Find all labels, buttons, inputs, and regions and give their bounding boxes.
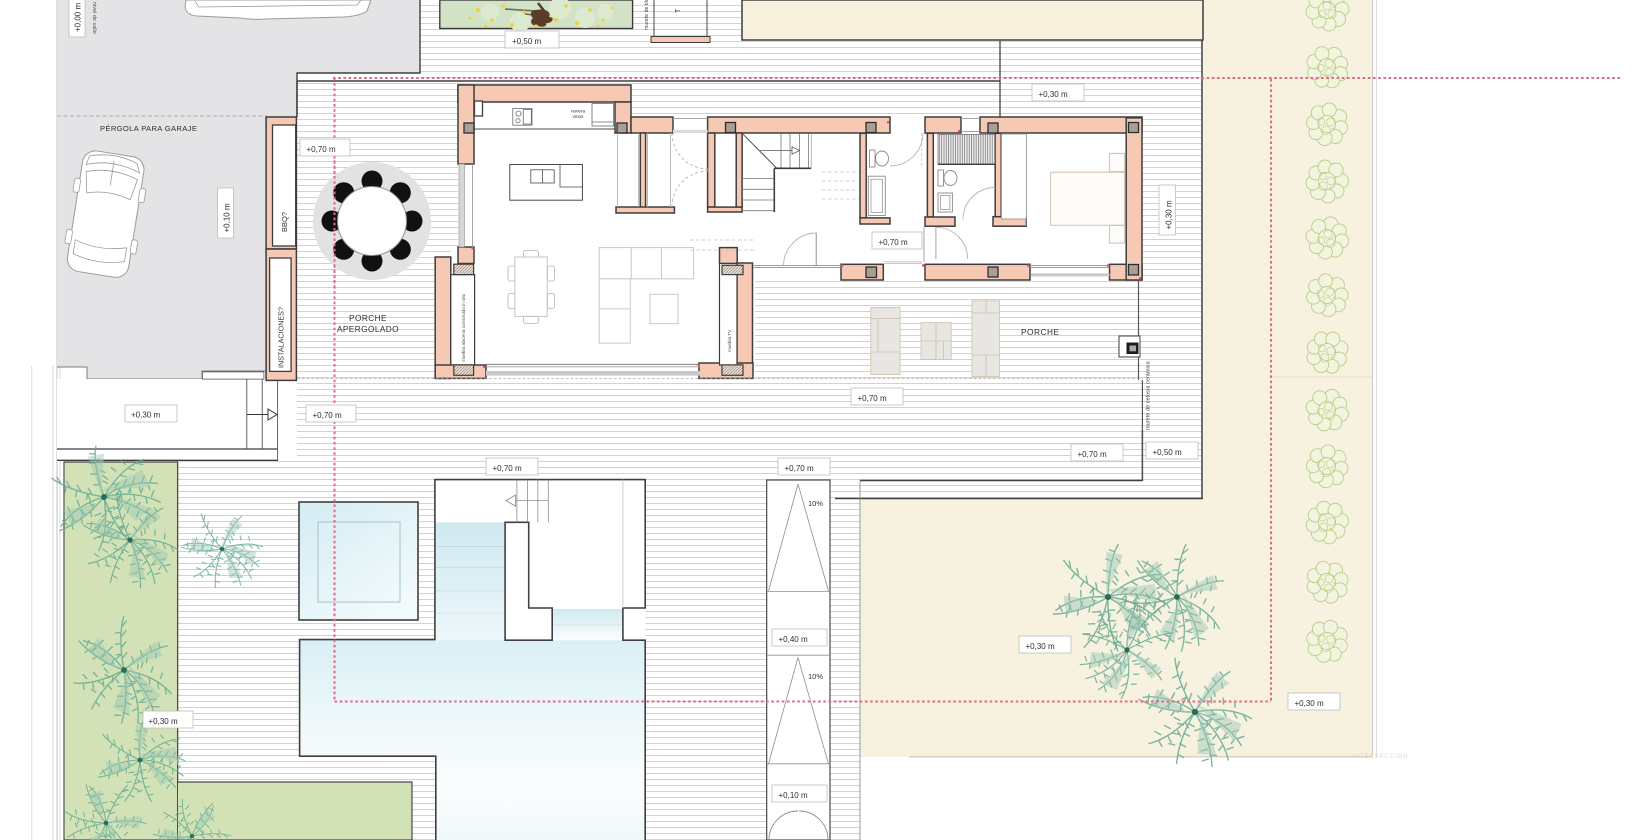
svg-text:+0,70 m: +0,70 m xyxy=(879,238,908,247)
svg-text:+0,70 m: +0,70 m xyxy=(858,394,887,403)
svg-text:+0,70 m: +0,70 m xyxy=(785,464,814,473)
svg-text:+0,30 m: +0,30 m xyxy=(149,717,178,726)
svg-text:+0,70 m: +0,70 m xyxy=(313,411,342,420)
svg-text:+0,50 m: +0,50 m xyxy=(1153,448,1182,457)
svg-text:10%: 10% xyxy=(808,672,823,681)
svg-text:+0,30 m: +0,30 m xyxy=(131,411,160,420)
svg-text:+0,10 m: +0,10 m xyxy=(779,791,808,800)
svg-text:10%: 10% xyxy=(808,499,823,508)
svg-text:PORCHE: PORCHE xyxy=(349,313,387,323)
svg-text:+0,30 m: +0,30 m xyxy=(1026,642,1055,651)
svg-text:+0,70 m: +0,70 m xyxy=(307,145,336,154)
svg-text:BBQ?: BBQ? xyxy=(280,212,289,232)
svg-text:INSTALACIONES?: INSTALACIONES? xyxy=(277,307,286,368)
svg-text:+0,30 m: +0,30 m xyxy=(1295,699,1324,708)
svg-text:+0,10 m: +0,10 m xyxy=(223,203,232,232)
svg-text:INTERSECCION: INTERSECCION xyxy=(1352,753,1408,760)
svg-text:APERGOLADO: APERGOLADO xyxy=(337,324,399,334)
svg-text:muebla alacena construido in s: muebla alacena construido in situ xyxy=(461,293,466,362)
svg-text:+0,30 m: +0,30 m xyxy=(1039,90,1068,99)
svg-text:muebla TV: muebla TV xyxy=(727,329,732,352)
svg-text:+0,30 m: +0,30 m xyxy=(1165,200,1174,229)
svg-text:+0,70 m: +0,70 m xyxy=(1078,450,1107,459)
svg-text:+0,50 m: +0,50 m xyxy=(512,37,541,46)
svg-text:vinos: vinos xyxy=(573,114,584,119)
svg-text:PÉRGOLA PARA GARAJE: PÉRGOLA PARA GARAJE xyxy=(100,124,197,133)
svg-text:nivel de calle: nivel de calle xyxy=(91,2,97,34)
svg-text:+0,00 m: +0,00 m xyxy=(74,3,83,32)
svg-text:murete de celosía cerámica: murete de celosía cerámica xyxy=(1146,360,1152,430)
svg-text:+0,70 m: +0,70 m xyxy=(493,464,522,473)
svg-text:murete de bloque: murete de bloque xyxy=(644,0,650,30)
svg-text:T: T xyxy=(675,8,682,13)
svg-text:nevera: nevera xyxy=(571,109,585,114)
svg-text:PORCHE: PORCHE xyxy=(1021,327,1060,337)
svg-text:+0,40 m: +0,40 m xyxy=(779,635,808,644)
